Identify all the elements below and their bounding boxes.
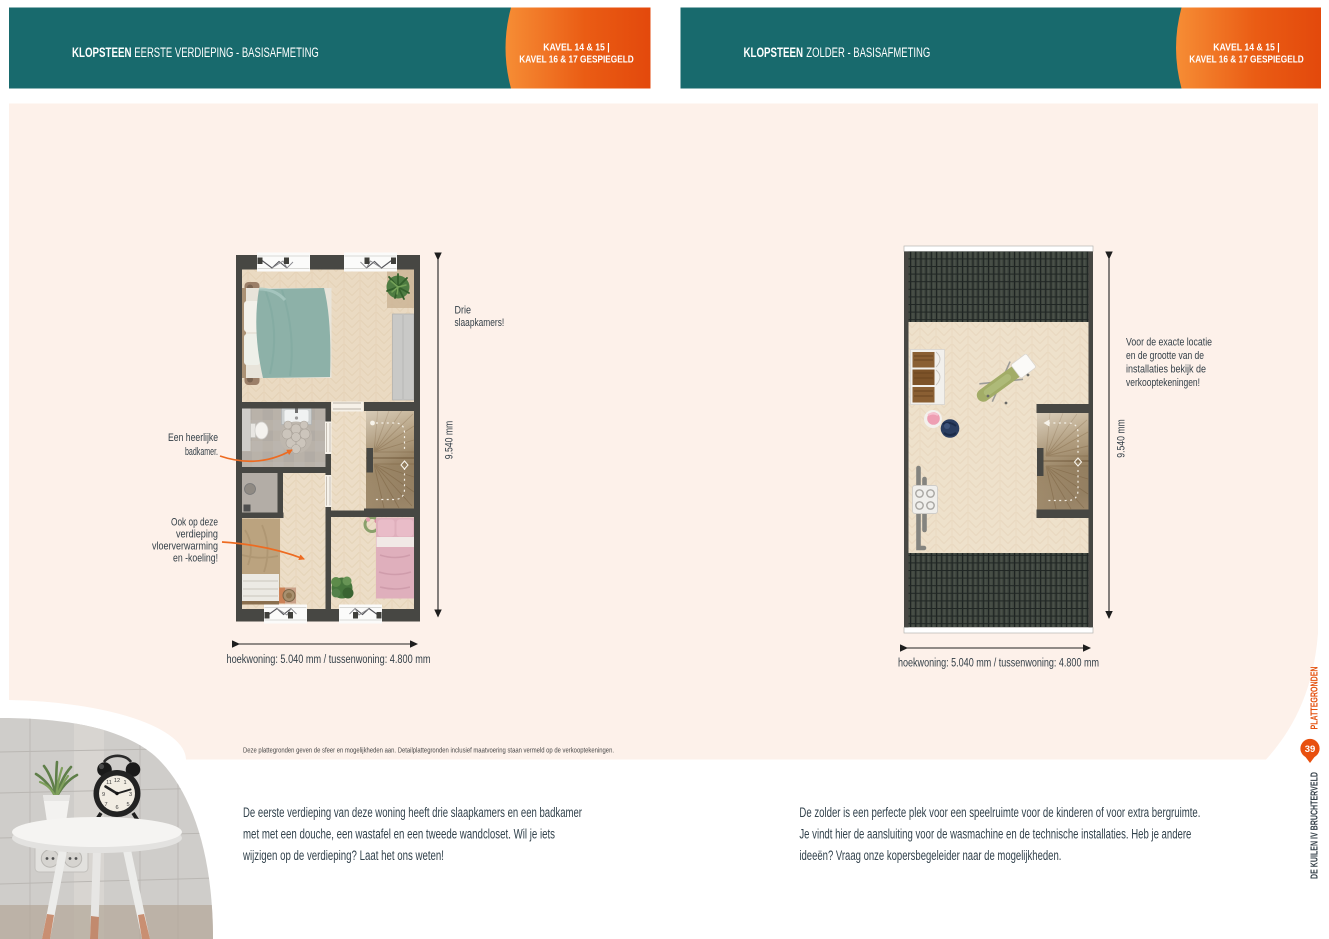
svg-text:vloerverwarming: vloerverwarming (152, 541, 218, 553)
svg-text:EERSTE VERDIEPING - BASISAFMET: EERSTE VERDIEPING - BASISAFMETING (134, 45, 318, 61)
svg-text:KLOPSTEEN: KLOPSTEEN (72, 45, 132, 61)
svg-text:KAVEL 16 & 17 GESPIEGELD: KAVEL 16 & 17 GESPIEGELD (519, 55, 634, 66)
svg-text:12: 12 (114, 778, 120, 784)
svg-text:Ook op deze: Ook op deze (171, 517, 218, 529)
svg-text:en de grootte van de: en de grootte van de (1126, 350, 1204, 362)
svg-text:KAVEL 16 & 17 GESPIEGELD: KAVEL 16 & 17 GESPIEGELD (1189, 55, 1304, 66)
svg-text:9.540 mm: 9.540 mm (1116, 419, 1128, 458)
svg-text:3: 3 (129, 792, 132, 798)
svg-text:wijzigen op de verdieping? Laa: wijzigen op de verdieping? Laat het ons … (242, 848, 444, 863)
svg-text:9.540 mm: 9.540 mm (444, 421, 456, 460)
svg-text:Een heerlijke: Een heerlijke (168, 432, 218, 444)
svg-text:hoekwoning: 5.040 mm / tussen: hoekwoning: 5.040 mm / tussenwoning: 4.8… (227, 652, 431, 666)
svg-text:Voor de exacte locatie: Voor de exacte locatie (1126, 337, 1212, 349)
svg-text:KLOPSTEEN: KLOPSTEEN (744, 45, 804, 61)
svg-text:11: 11 (106, 780, 112, 786)
svg-text:hoekwoning: 5.040 mm / tussen: hoekwoning: 5.040 mm / tussenwoning: 4.8… (898, 656, 1099, 670)
svg-text:verkooptekeningen!: verkooptekeningen! (1126, 377, 1200, 389)
svg-text:KAVEL 14 & 15 |: KAVEL 14 & 15 | (543, 43, 610, 54)
svg-text:met met een douche, een wastaf: met met een douche, een wastafel en een … (243, 827, 555, 842)
svg-text:verdieping: verdieping (176, 529, 218, 541)
svg-text:PLATTEGRONDEN: PLATTEGRONDEN (1310, 667, 1321, 730)
svg-text:DE KUILEN IV BRUCHTERVELD: DE KUILEN IV BRUCHTERVELD (1310, 772, 1321, 879)
svg-text:De zolder is een perfecte plek: De zolder is een perfecte plek voor een … (799, 805, 1200, 820)
svg-text:6: 6 (115, 805, 118, 811)
svg-text:5: 5 (126, 802, 129, 808)
svg-text:installaties bekijk de: installaties bekijk de (1126, 364, 1206, 376)
svg-text:Deze plattegronden geven de sf: Deze plattegronden geven de sfeer en mog… (243, 746, 614, 755)
svg-text:ZOLDER - BASISAFMETING: ZOLDER - BASISAFMETING (806, 45, 930, 61)
svg-text:KAVEL 14 & 15 |: KAVEL 14 & 15 | (1213, 43, 1280, 54)
svg-text:Drie: Drie (455, 305, 472, 317)
svg-text:Je vindt hier de aansluiting v: Je vindt hier de aansluiting voor de was… (799, 827, 1191, 842)
svg-text:en -koeling!: en -koeling! (173, 553, 218, 565)
svg-text:slaapkamers!: slaapkamers! (455, 317, 505, 329)
svg-text:9: 9 (102, 792, 105, 798)
svg-text:7: 7 (104, 802, 107, 808)
svg-text:badkamer.: badkamer. (185, 446, 218, 458)
svg-text:De eerste verdieping van deze: De eerste verdieping van deze woning hee… (243, 805, 582, 820)
svg-text:ideeën? Vraag onze kopersbegel: ideeën? Vraag onze kopersbegeleider naar… (799, 848, 1061, 863)
svg-text:39: 39 (1305, 744, 1316, 755)
svg-text:1: 1 (123, 780, 126, 786)
